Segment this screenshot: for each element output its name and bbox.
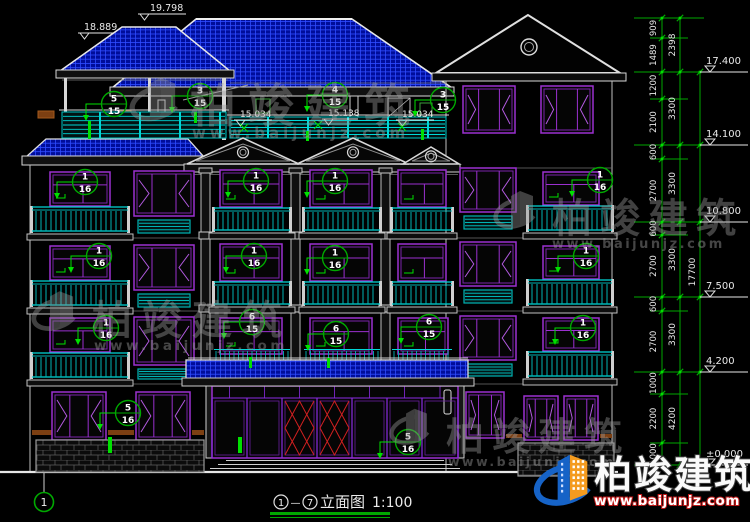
dimension-overall-text: 17700 bbox=[688, 257, 698, 286]
balcony-window bbox=[398, 170, 446, 207]
title-name: 立面图 bbox=[320, 493, 365, 511]
dimension-text: 3300 bbox=[668, 97, 678, 120]
axis-bubble-label: 1 bbox=[41, 496, 48, 509]
elevation-drawing-canvas: 1 90914891200210060027006002700600270010… bbox=[0, 0, 750, 522]
callout-sheet: 16 bbox=[329, 261, 342, 271]
callout-sheet: 16 bbox=[248, 259, 261, 269]
callout-number: 6 bbox=[426, 318, 432, 328]
dimension-text: 600 bbox=[649, 296, 659, 312]
callout-sheet: 15 bbox=[423, 330, 436, 340]
elevation-text: 14.100 bbox=[706, 129, 741, 140]
callout-number: 1 bbox=[580, 319, 586, 329]
title-underline-thick bbox=[270, 512, 390, 515]
callout-number: 1 bbox=[251, 247, 257, 257]
callout-sheet: 16 bbox=[122, 416, 135, 426]
wood-bracket bbox=[38, 111, 54, 118]
dimension-text: 1000 bbox=[649, 372, 659, 394]
door-side-sign bbox=[444, 390, 451, 414]
left-wing-fascia bbox=[22, 156, 210, 165]
ground-floor-window bbox=[52, 392, 106, 440]
large-window bbox=[460, 242, 516, 286]
dimension-text: 3300 bbox=[668, 172, 678, 195]
elevation-text: 18.889 bbox=[84, 22, 117, 33]
dimension-text: 4200 bbox=[668, 407, 678, 430]
pilaster bbox=[289, 168, 302, 386]
watermark-site: www.baijunjz.com bbox=[192, 124, 409, 142]
callout-number: 5 bbox=[125, 404, 131, 414]
green-leader-bar bbox=[249, 357, 252, 368]
title-axis-start: 1 bbox=[278, 498, 284, 509]
callout-number: 1 bbox=[332, 249, 338, 259]
louver-panel bbox=[138, 220, 190, 233]
porch-post-left bbox=[206, 386, 212, 458]
callout-number: 1 bbox=[332, 172, 338, 182]
large-window bbox=[541, 86, 593, 133]
green-leader-bar bbox=[108, 437, 112, 453]
callout-number: 1 bbox=[597, 171, 603, 181]
title-axis-end: 7 bbox=[307, 498, 313, 509]
balcony-window bbox=[310, 318, 372, 354]
dimension-text: 600 bbox=[649, 144, 659, 160]
pilaster bbox=[379, 168, 392, 386]
dimension-text: 2100 bbox=[649, 111, 659, 133]
elevation-text: 7.500 bbox=[706, 281, 735, 292]
elevation-text: 4.200 bbox=[706, 356, 735, 367]
green-leader-bar bbox=[88, 121, 91, 139]
dimension-text: 2700 bbox=[649, 331, 659, 353]
callout-sheet: 16 bbox=[577, 331, 590, 341]
green-leader-bar bbox=[327, 358, 330, 368]
watermark-site: www.baijunjz.com bbox=[552, 237, 725, 252]
callout-number: 5 bbox=[111, 95, 117, 105]
louver-panel bbox=[464, 290, 512, 303]
large-window bbox=[463, 86, 515, 133]
dimension-text: 2398 bbox=[668, 33, 678, 56]
callout-sheet: 16 bbox=[402, 445, 415, 455]
brand-logo: 柏竣建筑 www.baijunjz.com bbox=[532, 453, 750, 509]
ground-floor-window bbox=[136, 392, 190, 440]
watermark-site: www.baijunjz.com bbox=[448, 454, 616, 469]
gable-eave-fascia bbox=[432, 73, 626, 81]
callout-sheet: 16 bbox=[79, 185, 92, 195]
callout-sheet: 16 bbox=[580, 259, 593, 269]
stone-base-wall bbox=[36, 440, 204, 472]
brand-logo-text: 柏竣建筑 bbox=[594, 453, 750, 497]
dimension-text: 1200 bbox=[649, 75, 659, 97]
watermark-brand: 柏竣建筑 bbox=[552, 196, 744, 242]
callout-sheet: 16 bbox=[594, 183, 607, 193]
callout-sheet: 15 bbox=[108, 107, 121, 117]
callout-sheet: 16 bbox=[93, 259, 106, 269]
dimension-text: 2200 bbox=[649, 408, 659, 430]
green-leader-bar bbox=[238, 437, 242, 453]
balcony-window bbox=[398, 244, 446, 281]
dimension-text: 3300 bbox=[668, 323, 678, 346]
dimension-text: 2700 bbox=[649, 255, 659, 277]
callout-sheet: 16 bbox=[329, 184, 342, 194]
callout-sheet: 15 bbox=[437, 103, 450, 113]
title-scale: 1:100 bbox=[372, 495, 412, 511]
callout-number: 6 bbox=[333, 325, 339, 335]
callout-number: 1 bbox=[96, 247, 102, 257]
dimension-text: 1489 bbox=[649, 44, 659, 66]
callout-number: 3 bbox=[440, 91, 446, 101]
callout-sheet: 16 bbox=[250, 184, 263, 194]
large-window bbox=[460, 316, 516, 360]
large-window bbox=[134, 171, 194, 216]
large-window bbox=[134, 245, 194, 290]
elevation-text: 17.400 bbox=[706, 56, 741, 67]
callout-number: 1 bbox=[253, 172, 259, 182]
dimension-text: 909 bbox=[649, 20, 659, 36]
callout-number: 1 bbox=[82, 173, 88, 183]
left-wing-roof-band bbox=[26, 139, 204, 157]
window-sill-railing bbox=[304, 350, 380, 361]
title-separator: — bbox=[291, 498, 301, 509]
elevation-text: 19.798 bbox=[150, 3, 183, 14]
left-eave-fascia bbox=[56, 70, 234, 78]
callout-sheet: 15 bbox=[330, 337, 343, 347]
louver-panel bbox=[464, 364, 512, 376]
watermark-site: www.baijunjz.com bbox=[94, 338, 288, 354]
brand-logo-url: www.baijunjz.com bbox=[594, 493, 740, 509]
